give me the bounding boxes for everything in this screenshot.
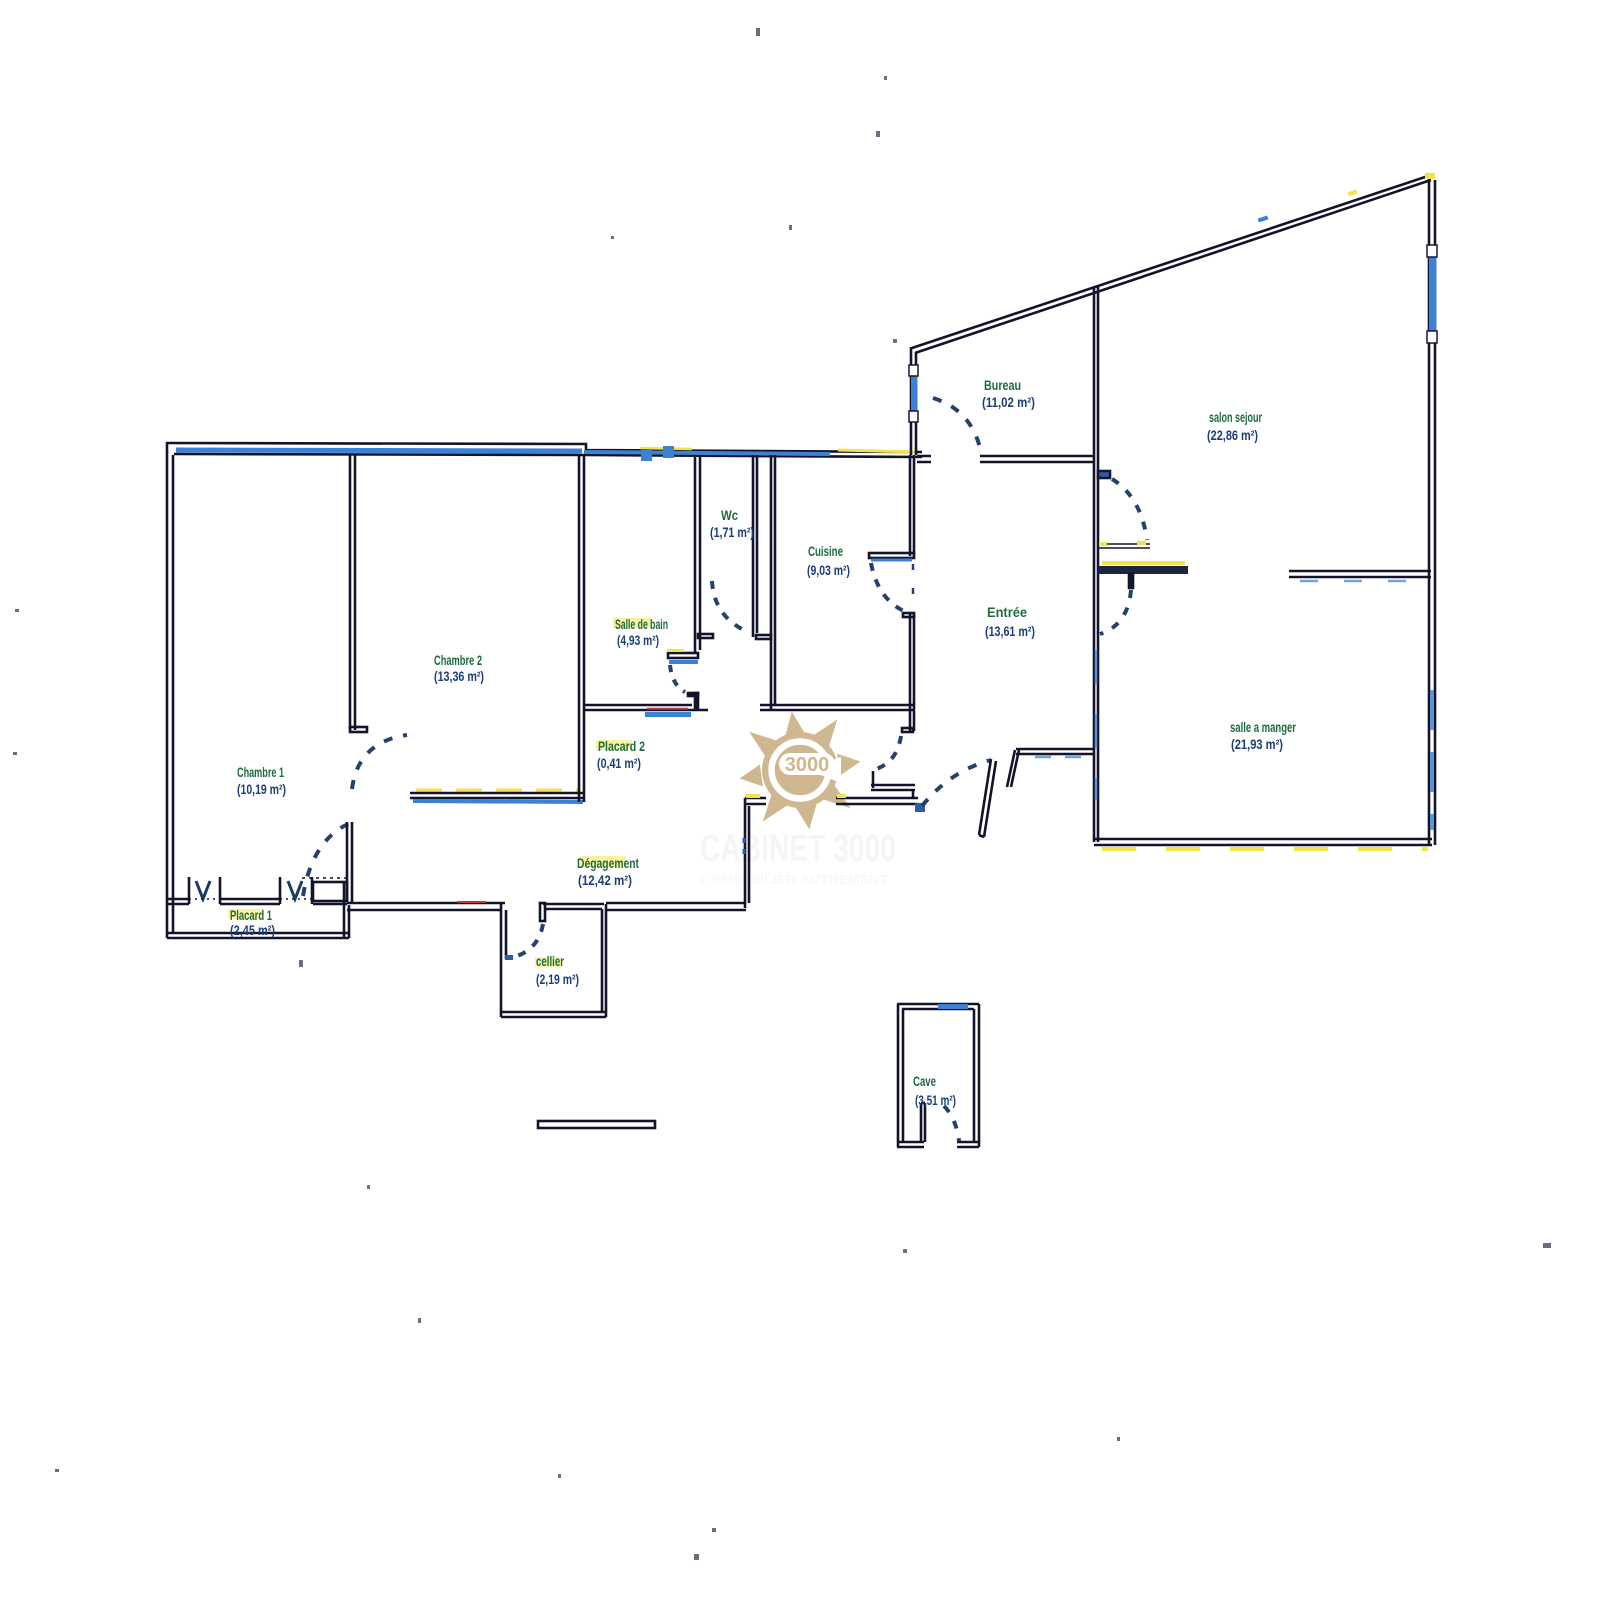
svg-text:Chambre 2: Chambre 2 xyxy=(434,652,482,668)
svg-text:3000: 3000 xyxy=(785,754,830,776)
svg-text:(21,93 m²): (21,93 m²) xyxy=(1231,736,1283,752)
svg-text:Entrée: Entrée xyxy=(987,604,1027,620)
svg-text:(2,45 m²): (2,45 m²) xyxy=(230,922,275,938)
svg-text:(3,51 m²): (3,51 m²) xyxy=(915,1092,956,1108)
svg-text:(1,71 m²): (1,71 m²) xyxy=(710,524,754,540)
svg-text:CABINET 3000: CABINET 3000 xyxy=(700,828,896,870)
svg-text:cellier: cellier xyxy=(536,953,564,969)
svg-text:(13,36 m²): (13,36 m²) xyxy=(434,668,484,684)
svg-text:(11,02 m²): (11,02 m²) xyxy=(982,394,1035,410)
svg-text:salon sejour: salon sejour xyxy=(1209,409,1262,425)
svg-text:(22,86 m²): (22,86 m²) xyxy=(1207,427,1258,443)
svg-text:Cuisine: Cuisine xyxy=(808,543,843,559)
svg-text:Cave: Cave xyxy=(913,1073,936,1089)
svg-text:(4,93 m²): (4,93 m²) xyxy=(617,632,659,648)
svg-text:Salle de bain: Salle de bain xyxy=(615,616,668,632)
svg-text:Placard 1: Placard 1 xyxy=(230,907,272,923)
svg-text:(13,61 m²): (13,61 m²) xyxy=(985,623,1035,639)
svg-text:Bureau: Bureau xyxy=(984,377,1021,393)
svg-text:(9,03 m²): (9,03 m²) xyxy=(807,562,850,578)
svg-text:Placard 2: Placard 2 xyxy=(598,738,645,754)
svg-text:(12,42 m²): (12,42 m²) xyxy=(578,872,632,888)
svg-text:L'IMMOBILIER AUTREMENT: L'IMMOBILIER AUTREMENT xyxy=(700,872,888,887)
svg-text:Dégagement: Dégagement xyxy=(577,855,639,871)
svg-text:Chambre 1: Chambre 1 xyxy=(237,764,284,780)
svg-text:Wc: Wc xyxy=(721,507,738,523)
svg-text:salle a manger: salle a manger xyxy=(1230,719,1296,735)
svg-text:(10,19 m²): (10,19 m²) xyxy=(237,781,286,797)
svg-text:(2,19 m²): (2,19 m²) xyxy=(536,971,579,987)
svg-text:(0,41 m²): (0,41 m²) xyxy=(597,755,641,771)
